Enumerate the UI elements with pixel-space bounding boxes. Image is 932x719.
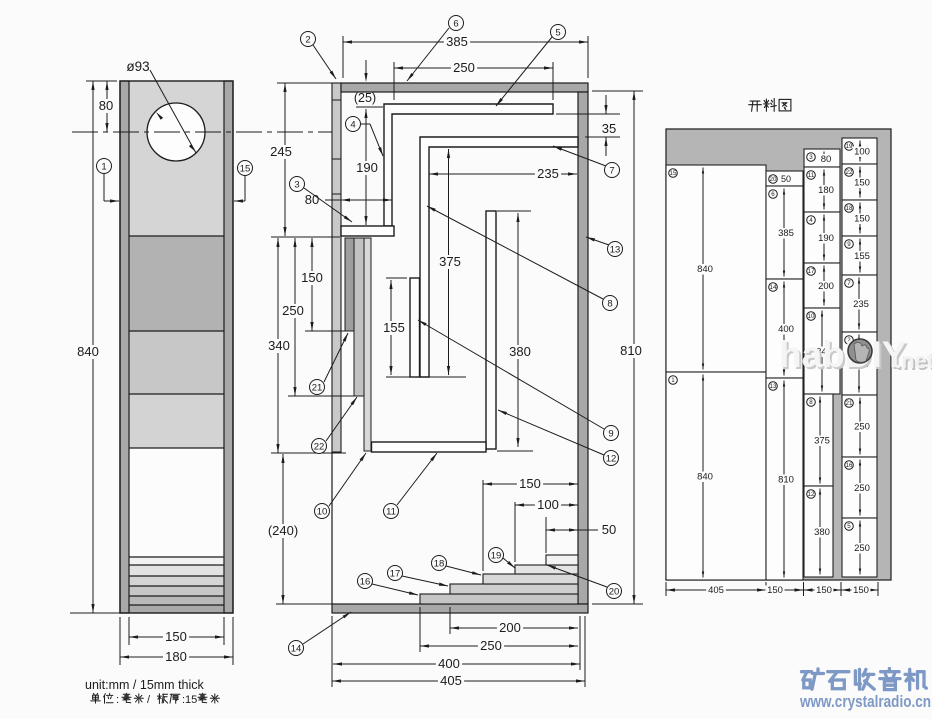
svg-text:11: 11 xyxy=(386,506,396,517)
svg-text:17: 17 xyxy=(808,268,815,275)
svg-text:405: 405 xyxy=(440,673,462,688)
svg-text:18: 18 xyxy=(846,205,853,212)
svg-text:14: 14 xyxy=(291,643,302,654)
svg-text:22: 22 xyxy=(314,441,325,452)
svg-text:150: 150 xyxy=(519,476,541,491)
svg-text:840: 840 xyxy=(77,344,99,359)
svg-text:180: 180 xyxy=(818,185,834,196)
svg-text:3: 3 xyxy=(294,179,299,190)
svg-text:8: 8 xyxy=(607,298,612,309)
svg-text:380: 380 xyxy=(509,344,531,359)
svg-text:150: 150 xyxy=(301,270,323,285)
svg-text:20: 20 xyxy=(609,586,620,597)
svg-text:19: 19 xyxy=(846,143,853,150)
svg-text:13: 13 xyxy=(610,244,621,255)
svg-text:35: 35 xyxy=(602,121,616,136)
svg-text:375: 375 xyxy=(439,254,461,269)
svg-text:11: 11 xyxy=(808,172,815,179)
svg-text:190: 190 xyxy=(818,233,834,244)
svg-text:9: 9 xyxy=(847,241,851,248)
svg-text:2: 2 xyxy=(305,34,310,45)
svg-text:50: 50 xyxy=(781,174,791,184)
svg-text:12: 12 xyxy=(808,491,815,498)
svg-text:250: 250 xyxy=(854,543,870,554)
svg-text:250: 250 xyxy=(854,422,870,433)
svg-text:19: 19 xyxy=(491,550,502,561)
svg-text:340: 340 xyxy=(268,338,290,353)
svg-text:21: 21 xyxy=(312,382,323,393)
svg-text:10: 10 xyxy=(808,313,815,320)
svg-text:250: 250 xyxy=(854,483,870,494)
svg-text:380: 380 xyxy=(814,527,830,538)
svg-text:100: 100 xyxy=(537,497,559,512)
svg-text:190: 190 xyxy=(356,160,378,175)
svg-text:12: 12 xyxy=(606,453,617,464)
svg-text:(25): (25) xyxy=(354,91,376,105)
svg-text:250: 250 xyxy=(480,638,502,653)
svg-text:3: 3 xyxy=(809,154,813,161)
svg-text:1: 1 xyxy=(101,161,106,172)
svg-text:6: 6 xyxy=(771,191,775,198)
svg-text:385: 385 xyxy=(778,228,794,239)
svg-text:235: 235 xyxy=(853,299,869,310)
svg-text:16: 16 xyxy=(846,462,853,469)
svg-text:840: 840 xyxy=(697,472,713,483)
svg-text:150: 150 xyxy=(854,214,870,225)
svg-text:9: 9 xyxy=(608,428,613,439)
svg-text:200: 200 xyxy=(818,281,834,292)
svg-text:150: 150 xyxy=(854,178,870,189)
svg-text:50: 50 xyxy=(602,522,616,537)
svg-text:150: 150 xyxy=(816,585,832,596)
svg-text:7: 7 xyxy=(847,280,851,287)
svg-text:155: 155 xyxy=(383,320,405,335)
svg-text:15: 15 xyxy=(670,170,677,177)
svg-text::15: :15 xyxy=(182,694,197,706)
svg-text:unit:mm / 15mm thick: unit:mm / 15mm thick xyxy=(85,678,205,692)
svg-text:80: 80 xyxy=(821,154,832,165)
svg-text:18: 18 xyxy=(434,558,445,569)
svg-text:22: 22 xyxy=(846,169,853,176)
svg-text:810: 810 xyxy=(620,343,642,358)
svg-text:155: 155 xyxy=(854,251,870,262)
svg-text:13: 13 xyxy=(770,383,777,390)
svg-text:4: 4 xyxy=(809,217,813,224)
svg-text:16: 16 xyxy=(360,576,371,587)
svg-text:150: 150 xyxy=(165,629,187,644)
svg-text:150: 150 xyxy=(853,585,869,596)
svg-text:375: 375 xyxy=(814,436,830,447)
svg-text:250: 250 xyxy=(453,60,475,75)
svg-text:405: 405 xyxy=(708,585,724,596)
svg-text:250: 250 xyxy=(282,303,304,318)
svg-text:.net: .net xyxy=(895,348,932,373)
svg-text:1: 1 xyxy=(671,377,675,384)
svg-text:(240): (240) xyxy=(268,523,298,538)
svg-text:400: 400 xyxy=(438,656,460,671)
svg-text:7: 7 xyxy=(609,165,614,176)
svg-text:80: 80 xyxy=(99,98,113,113)
svg-text:5: 5 xyxy=(847,523,851,530)
svg-text:10: 10 xyxy=(317,506,328,517)
svg-text:www.crystalradio.cn: www.crystalradio.cn xyxy=(799,692,931,711)
svg-text:840: 840 xyxy=(697,264,713,275)
svg-text:100: 100 xyxy=(854,147,870,158)
svg-text:8: 8 xyxy=(809,399,813,406)
svg-text:6: 6 xyxy=(453,18,458,29)
svg-text:245: 245 xyxy=(270,144,292,159)
svg-text::: : xyxy=(116,694,119,706)
svg-text:5: 5 xyxy=(555,27,560,38)
svg-text:810: 810 xyxy=(778,475,794,486)
svg-text:habDIY: habDIY xyxy=(779,334,907,375)
svg-text:20: 20 xyxy=(770,176,777,183)
svg-text:4: 4 xyxy=(350,119,355,130)
svg-text:200: 200 xyxy=(499,620,521,635)
svg-text:17: 17 xyxy=(390,568,401,579)
svg-text:21: 21 xyxy=(846,400,853,407)
svg-text:15: 15 xyxy=(240,163,251,174)
svg-text:235: 235 xyxy=(537,166,559,181)
svg-text:14: 14 xyxy=(770,284,777,291)
svg-text:ø93: ø93 xyxy=(126,59,149,74)
svg-text:180: 180 xyxy=(165,649,187,664)
svg-text:150: 150 xyxy=(767,585,783,596)
svg-text:385: 385 xyxy=(446,34,468,49)
